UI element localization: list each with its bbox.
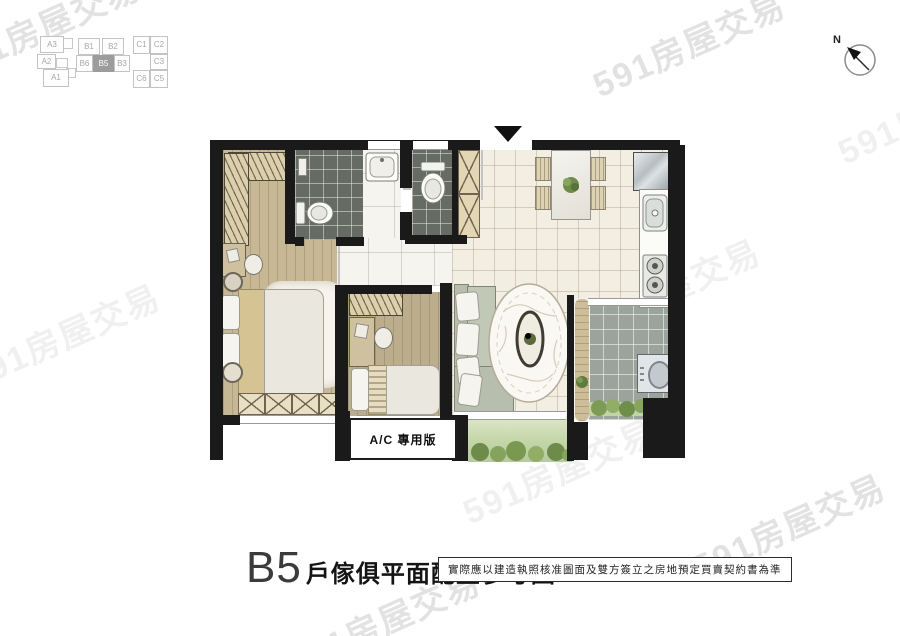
bed-mattress (264, 289, 324, 404)
bath-shelf (298, 158, 307, 176)
bed-pillow (351, 368, 369, 411)
master-door-leaf (338, 245, 340, 285)
wall-window-gap (368, 141, 400, 150)
stove-icon (642, 254, 668, 298)
bedroom2-desk (349, 317, 375, 367)
keyplan-unit-c2: C2 (150, 36, 168, 54)
wall (218, 140, 680, 150)
living-balcony-door (454, 411, 566, 420)
sofa-cushion (455, 322, 480, 357)
entry-door-leaf (481, 146, 483, 200)
wall (223, 415, 240, 425)
single-bed (351, 365, 438, 413)
wall (336, 237, 364, 246)
ac-platform-box: A/C 專用版 (349, 418, 457, 460)
keyplan-unit-b2: B2 (102, 38, 124, 55)
kitchen-balcony-window (588, 298, 668, 306)
kitchen-sink-icon (642, 194, 668, 232)
wall (405, 235, 467, 244)
refrigerator (633, 152, 671, 191)
floorplan-page: 591房屋交易 591房屋交易 591房屋交易 591房屋交易 591房屋交易 … (0, 0, 900, 636)
keyplan-block (56, 58, 68, 68)
toilet-icon (296, 198, 338, 228)
north-label: N (833, 34, 841, 46)
dining-chair (535, 186, 551, 210)
keyplan-unit-b6: B6 (76, 55, 93, 72)
keyplan-unit-c6: C6 (133, 70, 150, 88)
wall (335, 411, 350, 461)
dining-table (551, 150, 591, 220)
master-wardrobe-left (224, 153, 249, 246)
double-bed (221, 289, 322, 402)
dining-chair (590, 186, 606, 210)
sofa-cushion (455, 291, 480, 322)
garden-balcony (468, 416, 572, 462)
north-compass: N (830, 28, 882, 80)
keyplan-unit-c5: C5 (150, 70, 168, 88)
toilet-icon (416, 162, 450, 208)
vanity-stool (244, 254, 263, 275)
wall (335, 285, 348, 417)
master-window (240, 415, 340, 424)
watermark: 591房屋交易 (0, 270, 168, 399)
shoe-cabinet (458, 150, 480, 238)
garden-plants (468, 416, 572, 462)
bedroom2-chair (374, 327, 393, 349)
wall (567, 295, 574, 461)
wall (285, 150, 295, 244)
wall (643, 398, 685, 458)
wall (440, 283, 452, 420)
wall (452, 150, 458, 236)
ac-platform-label: A/C 專用版 (369, 431, 436, 448)
bedroom2-wardrobe (349, 293, 403, 316)
disclaimer-box: 實際應以建造執照核准圖面及雙方簽立之房地預定買賣契約書為準 (438, 557, 792, 582)
sofa-cushion (457, 373, 483, 408)
wall-window-gap (413, 141, 448, 150)
desk-book (226, 248, 240, 263)
wall (574, 422, 588, 460)
round-rug (487, 282, 571, 404)
bed-pillow (221, 295, 240, 330)
keyplan: A3 A2 A1 B1 B2 B6 B5 B3 C1 C2 C3 C6 C5 (30, 28, 190, 100)
wall (400, 148, 412, 188)
wall (295, 237, 304, 246)
keyplan-unit-a1: A1 (43, 69, 69, 87)
wall (210, 140, 223, 460)
bed-blanket (238, 289, 267, 404)
watermark: 591房屋交易 (584, 0, 793, 107)
nightstand-lamp (222, 362, 243, 383)
bed-mattress (386, 365, 440, 415)
wall (337, 285, 432, 294)
keyplan-unit-a3: A3 (40, 36, 64, 53)
keyplan-unit-c1: C1 (133, 36, 150, 54)
keyplan-unit-b5-highlight: B5 (93, 55, 114, 72)
compass-icon: N (830, 28, 882, 80)
entry-arrow-icon (494, 126, 522, 142)
dining-chair (535, 157, 551, 181)
washer-controls (640, 363, 644, 381)
floorplan: A/C 專用版 (210, 126, 685, 464)
keyplan-unit-b1: B1 (78, 38, 100, 55)
bathroom-door-leaf (403, 188, 411, 190)
balcony-tall-cabinet (574, 298, 590, 422)
desk-book (354, 323, 369, 339)
keyplan-unit-b3: B3 (114, 55, 130, 72)
washbasin-icon (365, 152, 399, 182)
window-bench (238, 393, 345, 415)
dining-chair (590, 157, 606, 181)
keyplan-unit-c3: C3 (150, 54, 168, 70)
unit-number: B5 (246, 546, 302, 590)
potted-plant-icon (575, 374, 589, 390)
washing-machine (637, 354, 670, 393)
keyplan-unit-a2: A2 (37, 54, 56, 69)
